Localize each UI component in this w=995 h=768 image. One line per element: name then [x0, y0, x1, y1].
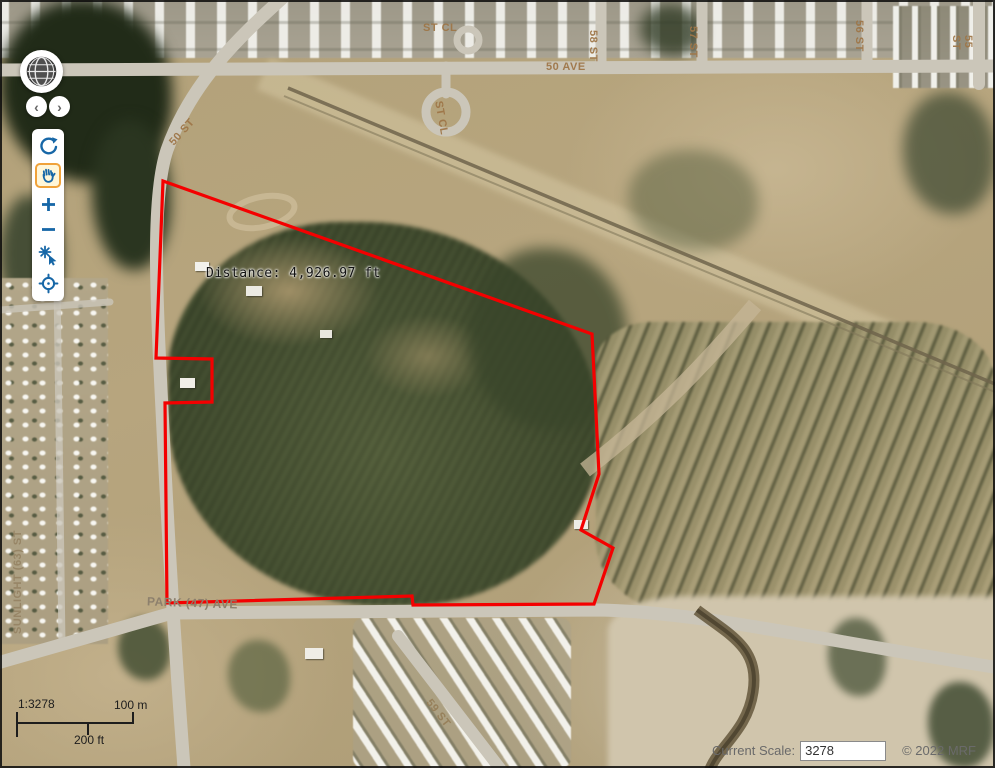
zoom-in-button[interactable]	[39, 195, 58, 214]
map-application-window: ST CL 50 AVE 58 ST 57 ST 56 ST 55 ST 50 …	[0, 0, 995, 768]
crosshair-icon	[38, 273, 59, 294]
parcel-boundary-polygon	[156, 181, 613, 605]
overview-next-button[interactable]: ›	[49, 96, 70, 117]
driveway-loop	[227, 190, 298, 233]
roads	[0, 0, 995, 768]
refresh-icon	[38, 136, 59, 157]
pan-tool-button[interactable]	[35, 163, 61, 188]
zoom-to-point-button[interactable]	[38, 245, 59, 266]
plus-icon	[39, 195, 58, 214]
distance-measurement-label: Distance: 4,926.97 ft	[206, 266, 381, 281]
pan-hand-icon	[38, 165, 58, 186]
map-tools-panel	[32, 129, 64, 301]
scalebar: 1:3278 100 m 200 ft	[14, 695, 174, 750]
overview-prev-button[interactable]: ‹	[26, 96, 47, 117]
current-scale-label: Current Scale:	[712, 743, 795, 758]
copyright-text: © 2022 MRF	[902, 743, 976, 758]
zoom-click-icon	[38, 245, 59, 266]
zoom-out-button[interactable]	[39, 220, 58, 239]
overview-globe-button[interactable]	[20, 50, 63, 93]
railway	[284, 88, 995, 392]
minus-icon	[39, 220, 58, 239]
globe-overview-icon	[25, 55, 58, 88]
cleared-track	[585, 305, 755, 470]
current-scale-input[interactable]	[800, 741, 886, 761]
center-map-button[interactable]	[38, 273, 59, 294]
scalebar-ratio: 1:3278	[18, 697, 55, 711]
map-vector-overlay	[0, 0, 995, 768]
refresh-button[interactable]	[38, 136, 59, 157]
scalebar-metric: 100 m	[114, 698, 147, 712]
scalebar-imperial: 200 ft	[74, 733, 104, 747]
statusbar: Current Scale: © 2022 MRF	[700, 733, 995, 768]
